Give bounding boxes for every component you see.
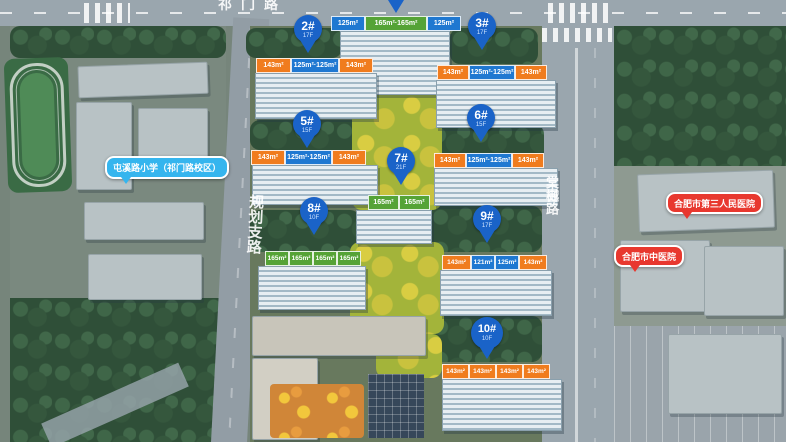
unit-tag: 125m² xyxy=(495,255,519,270)
campus-building xyxy=(88,254,202,300)
trees-right-top xyxy=(614,26,786,168)
pin-number: 5# xyxy=(300,115,313,127)
unit-tags-3: 143m² 125m²·125m² 143m² xyxy=(437,65,547,80)
unit-tag: 143m² xyxy=(519,255,547,270)
pin-floors: 21F xyxy=(396,165,406,171)
unit-tags-6: 143m² 125m²·125m² 143m² xyxy=(434,153,544,168)
unit-tag: 125m²·125m² xyxy=(291,58,339,73)
trees-left-bottom xyxy=(10,298,226,442)
unit-tag: 165m² xyxy=(265,251,289,266)
building-pin-5[interactable]: 5#15F xyxy=(290,110,324,148)
unit-tag: 165m²·165m² xyxy=(365,16,427,31)
pin-tail xyxy=(393,172,409,185)
unit-tag: 125m² xyxy=(331,16,365,31)
pin-floors: 17F xyxy=(482,223,492,229)
unit-tag: 143m² xyxy=(256,58,291,73)
crosswalk xyxy=(548,3,610,23)
pin-number: 8# xyxy=(307,202,320,214)
unit-tags-5: 143m² 125m²·125m² 143m² xyxy=(251,150,366,165)
pin-tail xyxy=(479,346,495,359)
unit-tag: 143m² xyxy=(442,255,471,270)
residential-tower-7 xyxy=(356,210,432,244)
pin-tail xyxy=(473,129,489,142)
unit-tag: 143m² xyxy=(339,58,373,73)
road-label-right: 棠樾路 xyxy=(538,176,564,215)
commercial-building xyxy=(668,334,782,414)
unit-tag: 143m² xyxy=(434,153,466,168)
pin-floors: 15F xyxy=(302,128,312,134)
campus-building xyxy=(77,62,208,99)
unit-tag: 143m² xyxy=(469,364,496,379)
pin-tail xyxy=(306,222,322,235)
unit-tags-top: 125m² 165m²·165m² 125m² xyxy=(331,16,461,31)
poi-hospital-top-bubble[interactable]: 合肥市第三人民医院 xyxy=(666,192,763,214)
hospital-building xyxy=(704,246,784,316)
pin-floors: 17F xyxy=(477,30,487,36)
unit-tag: 143m² xyxy=(251,150,285,165)
pin-number: 7# xyxy=(394,152,407,164)
building-pin-8[interactable]: 8#10F xyxy=(297,197,331,235)
road-label-left: 规划支路 xyxy=(234,193,274,255)
building-pin-7[interactable]: 7#21F xyxy=(384,147,418,185)
pin-number: 2# xyxy=(301,20,314,32)
building-pin-10[interactable]: 10#10F xyxy=(470,317,504,359)
crosswalk xyxy=(84,3,130,23)
unit-tag: 165m² xyxy=(337,251,361,266)
pin-floors: 15F xyxy=(476,122,486,128)
pin-floors: 10F xyxy=(309,215,319,221)
unit-tag: 121m² xyxy=(471,255,495,270)
residential-tower-8 xyxy=(258,266,366,310)
pin-floors: 10F xyxy=(482,336,492,342)
residential-tower-10 xyxy=(442,379,562,431)
unit-tag: 143m² xyxy=(512,153,544,168)
road-label-top: 祁门路 xyxy=(218,0,287,14)
pin-tail xyxy=(474,37,490,50)
unit-tag: 165m² xyxy=(368,195,399,210)
unit-tag: 165m² xyxy=(399,195,430,210)
pin-tail xyxy=(479,230,495,243)
unit-tags-7: 165m² 165m² xyxy=(368,195,430,210)
pin-tail xyxy=(300,40,316,53)
unit-tag: 143m² xyxy=(523,364,550,379)
unit-tag: 143m² xyxy=(332,150,366,165)
soccer-infield xyxy=(19,72,57,177)
road-right-lane-line xyxy=(594,48,596,442)
building-pin-6[interactable]: 6#15F xyxy=(464,104,498,142)
unit-tag: 143m² xyxy=(437,65,469,80)
residential-tower-9 xyxy=(440,270,552,316)
building-pin-2[interactable]: 2#17F xyxy=(291,15,325,53)
sports-field xyxy=(4,57,73,193)
pin-number: 9# xyxy=(480,210,493,222)
pin-tail xyxy=(299,135,315,148)
pin-top-partial xyxy=(388,0,404,13)
unit-tag: 143m² xyxy=(515,65,547,80)
unit-tag: 125m² xyxy=(427,16,461,31)
unit-tags-10: 143m² 143m² 143m² 143m² xyxy=(442,364,550,379)
poi-school-bubble[interactable]: 屯溪路小学（祁门路校区） xyxy=(105,156,229,179)
building-pin-3[interactable]: 3#17F xyxy=(465,12,499,50)
unit-tag: 165m² xyxy=(289,251,313,266)
trees-left-top xyxy=(10,26,226,58)
pin-number: 6# xyxy=(474,109,487,121)
site-aerial-map: 祁门路 规划支路 棠樾路 屯溪路小学（祁门路校区） 合肥市第三人民医院 合肥市中… xyxy=(0,0,786,442)
unit-tag: 125m²·125m² xyxy=(469,65,515,80)
unit-tag: 125m²·125m² xyxy=(466,153,512,168)
campus-building xyxy=(84,202,204,240)
crosswalk xyxy=(542,28,612,42)
unit-tags-2: 143m² 125m²·125m² 143m² xyxy=(256,58,373,73)
unit-tags-8: 165m² 165m² 165m² 165m² xyxy=(265,251,361,266)
pin-number: 10# xyxy=(478,324,496,335)
unit-tags-9: 143m² 121m² 125m² 143m² xyxy=(442,255,547,270)
playground-court xyxy=(270,384,364,438)
poi-hospital-bottom-bubble[interactable]: 合肥市中医院 xyxy=(614,245,684,267)
unit-tag: 143m² xyxy=(442,364,469,379)
unit-tag: 165m² xyxy=(313,251,337,266)
pin-number: 3# xyxy=(475,17,488,29)
pin-floors: 17F xyxy=(303,33,313,39)
unit-tag: 125m²·125m² xyxy=(285,150,332,165)
building-pin-9[interactable]: 9#17F xyxy=(470,205,504,243)
solar-roof xyxy=(368,374,424,438)
unit-tag: 143m² xyxy=(496,364,523,379)
road-right-center-line xyxy=(575,48,578,442)
kindergarten-building xyxy=(252,316,426,356)
